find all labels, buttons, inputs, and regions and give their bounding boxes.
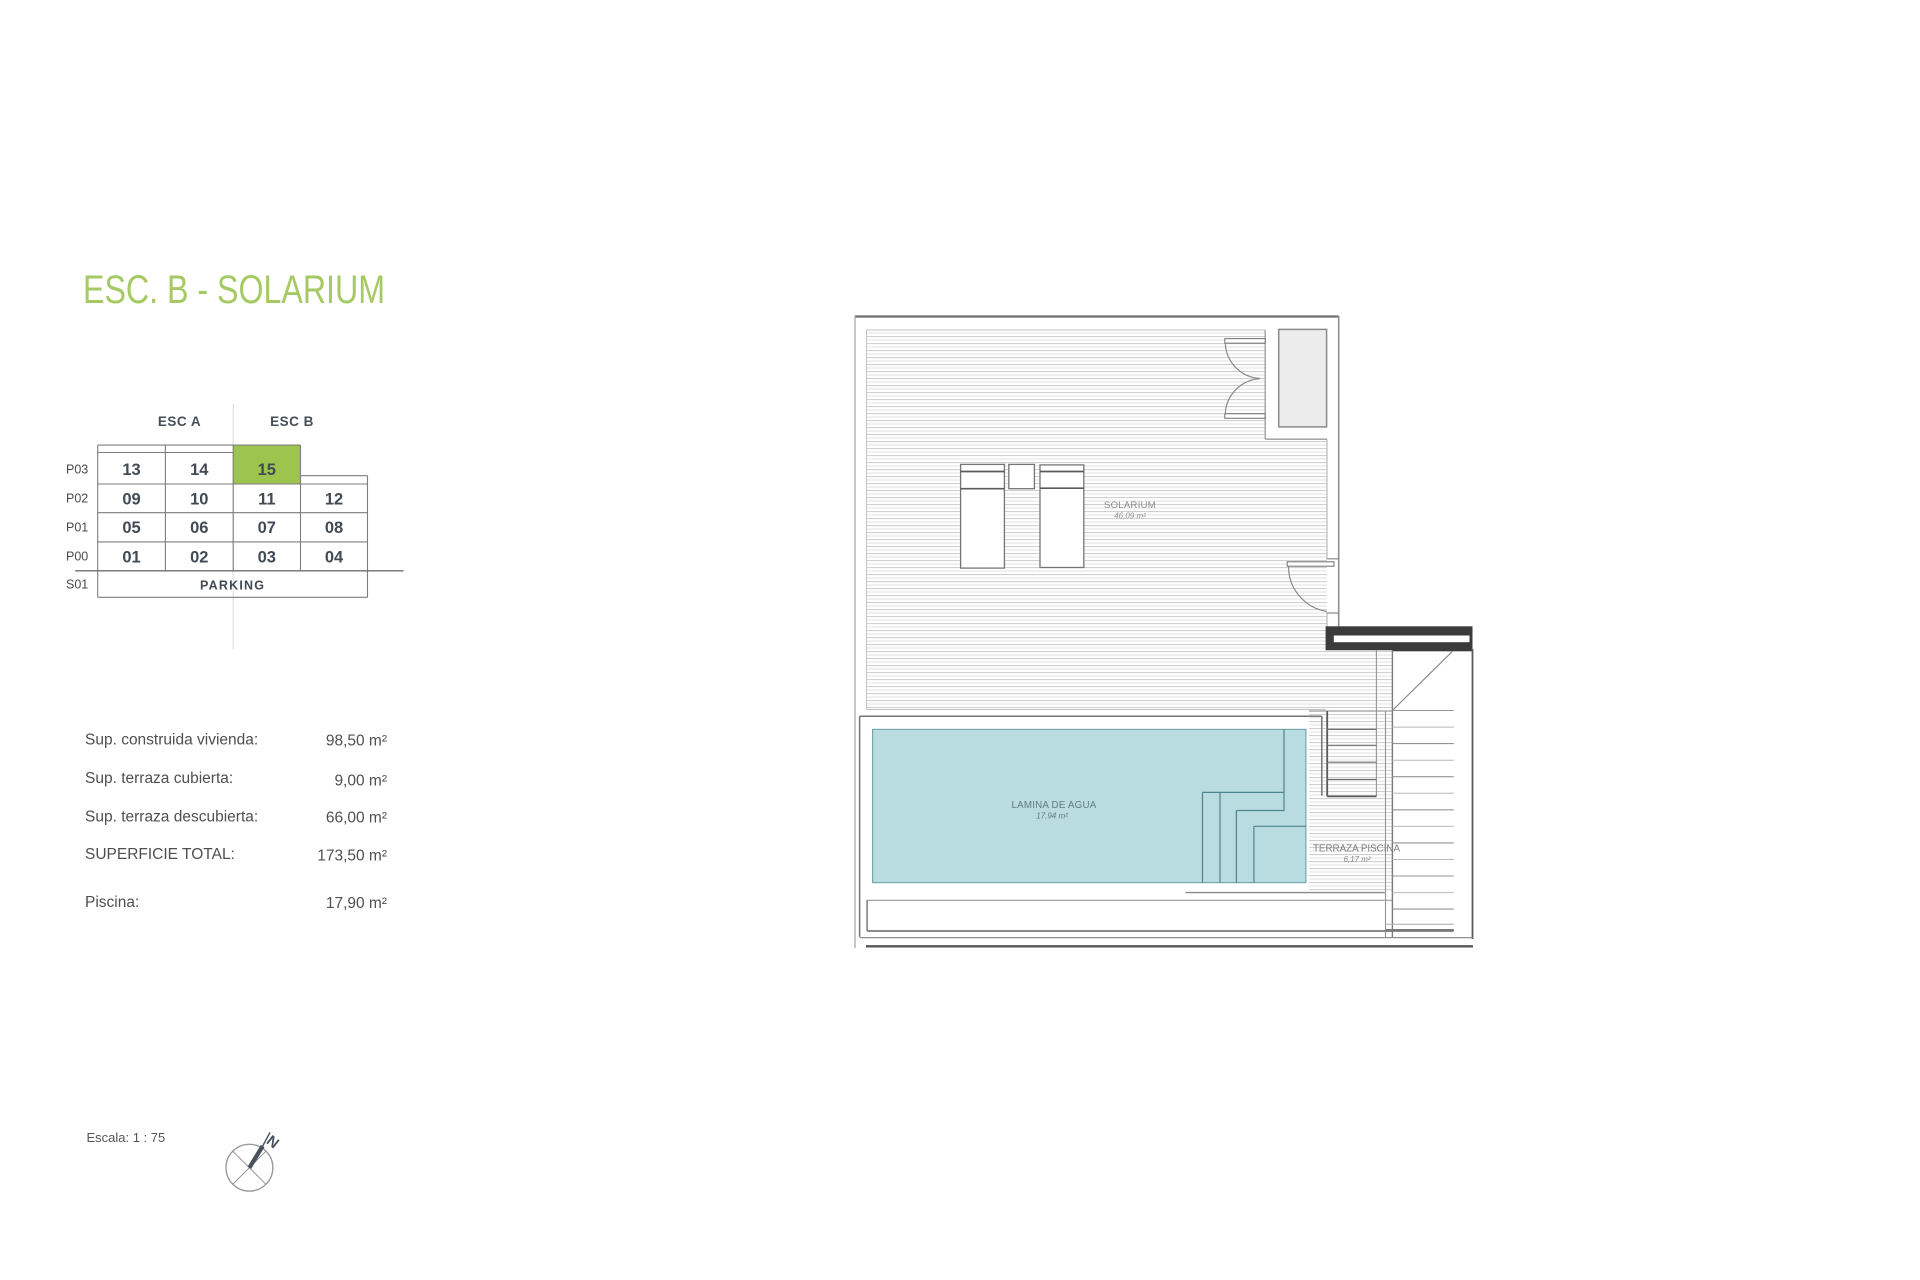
svg-text:17,94 m²: 17,94 m²: [1036, 812, 1068, 821]
svg-text:07: 07: [258, 519, 276, 537]
svg-text:98,50 m²: 98,50 m²: [326, 733, 387, 750]
svg-text:12: 12: [325, 490, 343, 508]
svg-text:09: 09: [122, 490, 140, 508]
svg-text:17,90 m²: 17,90 m²: [326, 895, 387, 912]
svg-text:04: 04: [325, 548, 344, 566]
svg-text:13: 13: [122, 461, 140, 479]
svg-text:S01: S01: [66, 578, 88, 592]
svg-text:6,17 m²: 6,17 m²: [1343, 855, 1370, 864]
svg-text:173,50 m²: 173,50 m²: [317, 848, 387, 865]
svg-text:N: N: [263, 1132, 282, 1152]
svg-text:TERRAZA PISCINA: TERRAZA PISCINA: [1313, 844, 1401, 855]
svg-text:66,00 m²: 66,00 m²: [326, 810, 387, 827]
svg-text:Piscina:: Piscina:: [85, 894, 139, 911]
svg-text:P01: P01: [66, 521, 88, 535]
svg-text:10: 10: [190, 490, 208, 508]
svg-text:LAMINA DE AGUA: LAMINA DE AGUA: [1011, 800, 1096, 811]
svg-text:ESC A: ESC A: [158, 414, 201, 429]
svg-text:9,00 m²: 9,00 m²: [334, 773, 387, 790]
svg-text:06: 06: [190, 519, 208, 537]
svg-text:14: 14: [190, 461, 209, 479]
svg-text:08: 08: [325, 519, 343, 537]
svg-text:P02: P02: [66, 492, 88, 506]
svg-text:46,09 m²: 46,09 m²: [1114, 512, 1146, 521]
svg-text:02: 02: [190, 548, 208, 566]
svg-text:Escala: 1 : 75: Escala: 1 : 75: [87, 1130, 166, 1145]
svg-text:03: 03: [258, 548, 276, 566]
svg-text:15: 15: [258, 461, 276, 479]
svg-text:ESC B: ESC B: [270, 414, 314, 429]
svg-text:SUPERFICIE TOTAL:: SUPERFICIE TOTAL:: [85, 846, 235, 863]
svg-text:ESC. B - SOLARIUM: ESC. B - SOLARIUM: [83, 268, 385, 312]
svg-text:Sup. terraza descubierta:: Sup. terraza descubierta:: [85, 809, 258, 826]
svg-text:SOLARIUM: SOLARIUM: [1104, 500, 1156, 511]
svg-text:05: 05: [122, 519, 140, 537]
svg-text:01: 01: [122, 548, 140, 566]
svg-text:11: 11: [258, 490, 275, 508]
svg-text:P03: P03: [66, 463, 88, 477]
svg-text:P00: P00: [66, 550, 88, 564]
svg-text:Sup. construida vivienda:: Sup. construida vivienda:: [85, 732, 258, 749]
svg-text:PARKING: PARKING: [200, 579, 265, 593]
svg-text:Sup. terraza cubierta:: Sup. terraza cubierta:: [85, 770, 233, 787]
